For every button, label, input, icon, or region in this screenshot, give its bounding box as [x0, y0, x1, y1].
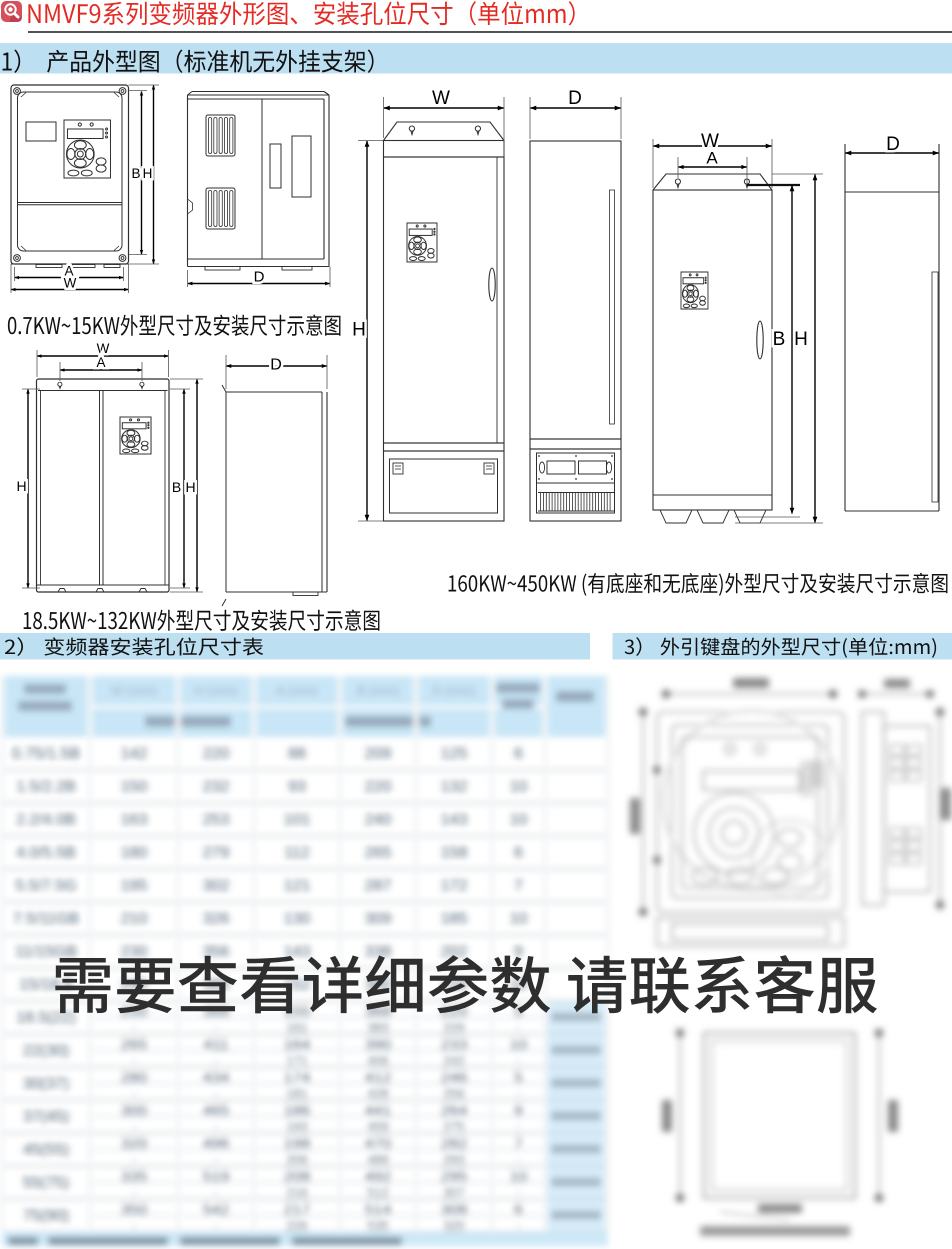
svg-text:-: -	[516, 1186, 520, 1201]
svg-text:93: 93	[288, 779, 306, 796]
svg-text:-: -	[132, 1120, 136, 1135]
svg-text:-: -	[214, 1219, 218, 1234]
svg-text:W: W	[432, 88, 450, 109]
svg-text:275: 275	[443, 1120, 465, 1135]
svg-text:-: -	[132, 1186, 136, 1201]
svg-text:535: 535	[367, 1219, 389, 1234]
svg-text:512: 512	[367, 1186, 389, 1201]
svg-text:264: 264	[441, 1103, 468, 1120]
svg-text:172: 172	[441, 878, 468, 895]
svg-text:H: H	[16, 478, 26, 494]
svg-text:240: 240	[365, 812, 392, 829]
svg-text:-: -	[214, 1120, 218, 1135]
svg-text:A: A	[96, 355, 105, 370]
svg-text:434: 434	[203, 1070, 230, 1087]
svg-text:1.5/2.2B: 1.5/2.2B	[16, 779, 76, 796]
svg-text:195: 195	[121, 878, 148, 895]
svg-text:143: 143	[441, 812, 468, 829]
svg-text:H: H	[794, 329, 808, 350]
svg-text:308: 308	[441, 1202, 468, 1219]
svg-text:4.0/5.5B: 4.0/5.5B	[16, 845, 76, 862]
svg-text:161: 161	[286, 1021, 308, 1036]
svg-text:232: 232	[203, 779, 230, 796]
svg-text:D: D	[270, 357, 282, 374]
svg-text:-: -	[516, 1153, 520, 1168]
svg-text:-: -	[516, 1054, 520, 1069]
svg-text:326: 326	[203, 911, 230, 928]
svg-text:302: 302	[203, 878, 230, 895]
svg-text:246: 246	[441, 1070, 468, 1087]
svg-text:10: 10	[510, 812, 528, 829]
svg-text:256: 256	[443, 1087, 465, 1102]
svg-text:220: 220	[365, 779, 392, 796]
svg-text:406: 406	[367, 1054, 389, 1069]
svg-text:7.5/11GB: 7.5/11GB	[13, 911, 79, 928]
svg-text:112: 112	[284, 845, 310, 862]
svg-text:383: 383	[367, 1021, 389, 1036]
svg-text:164: 164	[284, 1037, 311, 1054]
svg-text:186: 186	[284, 1103, 311, 1120]
svg-text:412: 412	[365, 1070, 392, 1087]
svg-text:158: 158	[441, 845, 468, 862]
svg-text:H: H	[185, 479, 195, 495]
svg-text:-: -	[214, 1021, 218, 1036]
svg-text:-: -	[132, 1054, 136, 1069]
svg-text:171: 171	[286, 1054, 308, 1069]
svg-text:514: 514	[365, 1202, 392, 1219]
svg-text:233: 233	[441, 1037, 468, 1054]
svg-text:125: 125	[441, 746, 468, 763]
svg-text:198: 198	[284, 1136, 311, 1153]
svg-text:287: 287	[365, 878, 392, 895]
svg-text:-: -	[214, 1153, 218, 1168]
svg-text:300: 300	[121, 1103, 148, 1120]
svg-text:10: 10	[510, 779, 528, 796]
svg-text:230: 230	[121, 944, 148, 961]
svg-text:142: 142	[121, 746, 148, 763]
svg-text:335: 335	[121, 1169, 148, 1186]
svg-text:7: 7	[514, 1136, 523, 1153]
svg-text:B: B	[131, 166, 140, 181]
svg-text:309: 309	[365, 911, 392, 928]
svg-text:-: -	[132, 1021, 136, 1036]
svg-text:459: 459	[367, 1120, 389, 1135]
svg-text:229: 229	[443, 1021, 465, 1036]
svg-text:D: D	[886, 134, 900, 155]
svg-text:-: -	[132, 1153, 136, 1168]
svg-text:88: 88	[288, 746, 306, 763]
svg-text:37(45): 37(45)	[23, 1109, 69, 1126]
svg-text:216: 216	[286, 1186, 308, 1201]
svg-text:180: 180	[121, 845, 148, 862]
svg-text:220: 220	[203, 746, 230, 763]
svg-text:174: 174	[284, 1070, 311, 1087]
svg-text:132: 132	[441, 779, 468, 796]
svg-text:-: -	[516, 1087, 520, 1102]
svg-text:293: 293	[443, 1153, 465, 1168]
svg-text:6: 6	[514, 746, 523, 763]
svg-text:H (mm): H (mm)	[194, 683, 237, 698]
svg-text:D: D	[254, 269, 265, 286]
svg-text:9: 9	[514, 1103, 523, 1120]
svg-text:101: 101	[284, 812, 311, 829]
svg-text:30(37): 30(37)	[23, 1076, 69, 1093]
svg-text:22(30): 22(30)	[23, 1043, 69, 1060]
svg-text:390: 390	[365, 1037, 392, 1054]
svg-text:163: 163	[121, 812, 148, 829]
svg-text:A: A	[706, 149, 718, 168]
svg-text:-: -	[214, 1087, 218, 1102]
svg-text:441: 441	[365, 1103, 392, 1120]
svg-text:338: 338	[365, 944, 392, 961]
svg-text:5.5/7.5G: 5.5/7.5G	[15, 878, 76, 895]
svg-text:295: 295	[441, 1169, 468, 1186]
svg-text:150: 150	[121, 779, 148, 796]
svg-text:428: 428	[367, 1087, 389, 1102]
svg-text:W: W	[64, 276, 77, 291]
svg-text:265: 265	[121, 1037, 148, 1054]
svg-text:320: 320	[443, 1219, 465, 1234]
svg-text:18.5(22): 18.5(22)	[16, 1010, 76, 1027]
svg-text:181: 181	[286, 1087, 308, 1102]
svg-text:253: 253	[203, 812, 230, 829]
svg-text:496: 496	[203, 1136, 230, 1153]
svg-text:-: -	[214, 1054, 218, 1069]
svg-text:210: 210	[121, 911, 148, 928]
svg-text:280: 280	[121, 1070, 148, 1087]
svg-text:6: 6	[514, 845, 523, 862]
svg-text:A (mm): A (mm)	[276, 683, 318, 698]
svg-text:75(90): 75(90)	[23, 1208, 69, 1225]
svg-text:W: W	[97, 341, 110, 356]
svg-text:307: 307	[443, 1186, 465, 1201]
svg-text:0.75/1.5B: 0.75/1.5B	[12, 746, 81, 763]
svg-text:-: -	[516, 1120, 520, 1135]
svg-text:2.2/4.0B: 2.2/4.0B	[16, 812, 76, 829]
svg-text:45(55): 45(55)	[23, 1142, 69, 1159]
svg-text:-: -	[516, 1021, 520, 1036]
svg-text:519: 519	[203, 1169, 230, 1186]
svg-text:470: 470	[365, 1136, 392, 1153]
svg-text:279: 279	[203, 845, 230, 862]
svg-text:217: 217	[284, 1202, 311, 1219]
svg-text:208: 208	[284, 1169, 311, 1186]
svg-text:226: 226	[286, 1219, 308, 1234]
svg-text:W (mm): W (mm)	[111, 683, 157, 698]
svg-text:489: 489	[367, 1153, 389, 1168]
svg-text:10: 10	[510, 1037, 528, 1054]
svg-text:-: -	[132, 1087, 136, 1102]
svg-text:10: 10	[510, 1169, 528, 1186]
svg-text:H: H	[143, 166, 153, 181]
svg-text:411: 411	[203, 1037, 229, 1054]
svg-text:-: -	[132, 1219, 136, 1234]
svg-text:B (mm): B (mm)	[357, 683, 400, 698]
svg-text:B: B	[773, 329, 786, 350]
svg-text:492: 492	[365, 1169, 392, 1186]
svg-text:D (mm): D (mm)	[432, 683, 475, 698]
svg-text:388: 388	[203, 1004, 230, 1021]
svg-text:542: 542	[203, 1202, 230, 1219]
svg-text:130: 130	[284, 911, 311, 928]
svg-text:206: 206	[286, 1153, 308, 1168]
svg-text:282: 282	[441, 1136, 468, 1153]
svg-text:265: 265	[365, 845, 392, 862]
svg-text:6: 6	[514, 1202, 523, 1219]
svg-text:-: -	[214, 1186, 218, 1201]
svg-text:209: 209	[365, 746, 392, 763]
svg-text:B: B	[172, 479, 181, 495]
svg-text:350: 350	[121, 1202, 148, 1219]
svg-text:5: 5	[514, 1070, 523, 1087]
svg-text:121: 121	[284, 878, 311, 895]
svg-text:11/15GB: 11/15GB	[15, 944, 77, 961]
svg-text:7: 7	[514, 878, 523, 895]
svg-text:465: 465	[203, 1103, 230, 1120]
svg-text:-: -	[516, 1219, 520, 1234]
svg-text:193: 193	[286, 1120, 308, 1135]
svg-text:H: H	[352, 320, 366, 341]
svg-text:D: D	[568, 88, 582, 109]
svg-text:242: 242	[443, 1054, 465, 1069]
svg-text:185: 185	[441, 911, 468, 928]
svg-text:10: 10	[510, 911, 528, 928]
svg-text:320: 320	[121, 1136, 148, 1153]
svg-text:55(75): 55(75)	[23, 1175, 69, 1192]
